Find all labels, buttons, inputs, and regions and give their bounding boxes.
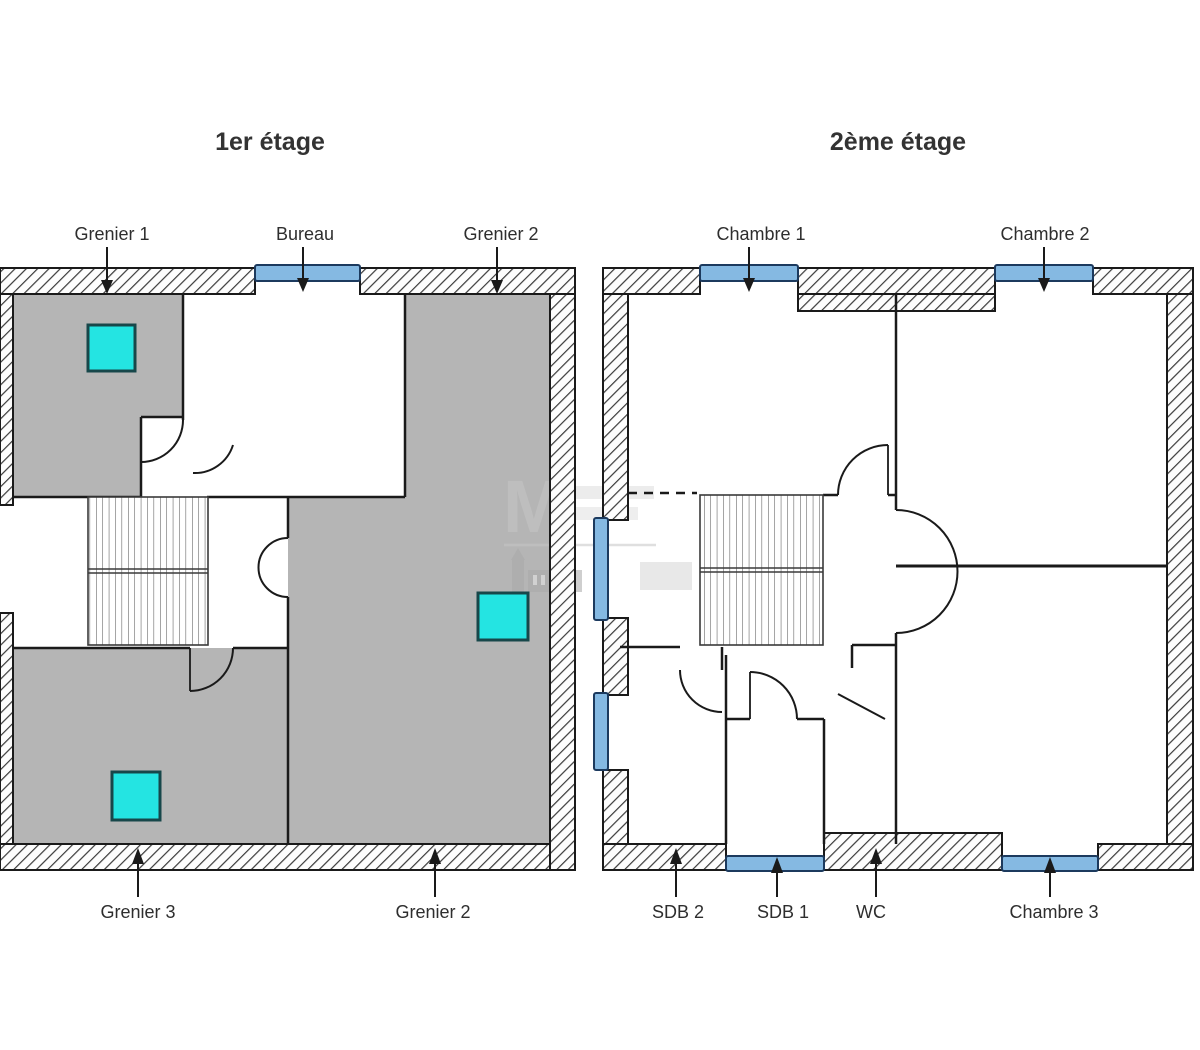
wall-top-3 [1093,268,1193,294]
label-chambre-2: Chambre 2 [1000,224,1089,244]
label-chambre-1: Chambre 1 [716,224,805,244]
wall-bottom-1 [603,844,726,870]
door-arc [193,445,233,473]
door-arc [259,538,289,597]
plan-first-floor: M [0,224,692,922]
door-arc [750,672,797,719]
door-arc [838,445,888,495]
floorplan-drawing: 1er étage 2ème étage M [0,0,1200,1050]
wall-top-1 [603,268,700,294]
wall-right [550,294,575,870]
door-arc [141,420,183,462]
window [594,518,608,620]
label-grenier-1: Grenier 1 [74,224,149,244]
staircase-second-floor [700,495,823,645]
wall-left-1 [603,294,628,520]
door-arc [680,670,722,712]
label-grenier-2-top: Grenier 2 [463,224,538,244]
floorplan-page: 1er étage 2ème étage M [0,0,1200,1050]
wall-bottom-2 [824,833,1002,870]
label-chambre-3: Chambre 3 [1009,902,1098,922]
skylight [88,325,135,371]
label-bureau: Bureau [276,224,334,244]
label-grenier-2-bottom: Grenier 2 [395,902,470,922]
door-arc [896,510,957,633]
wall-bottom-3 [1098,844,1193,870]
room-grenier-2 [288,294,550,844]
wall-right [1167,294,1193,844]
door-leaf [838,694,885,719]
wall-top-2 [798,268,995,294]
wall-top-right [360,268,575,294]
label-grenier-3: Grenier 3 [100,902,175,922]
plan2-title: 2ème étage [830,128,966,156]
skylight [478,593,528,640]
label-sdb-1: SDB 1 [757,902,809,922]
wall-top-left [0,268,255,294]
staircase-first-floor [88,497,208,645]
label-sdb-2: SDB 2 [652,902,704,922]
wall-left-3 [603,770,628,844]
skylight [112,772,160,820]
wall-left-2 [603,618,628,695]
plan1-title: 1er étage [215,128,325,156]
wall-bottom [0,844,550,870]
wall-left-lower [0,613,13,844]
window [594,693,608,770]
label-wc: WC [856,902,886,922]
wall-left-upper [0,294,13,505]
